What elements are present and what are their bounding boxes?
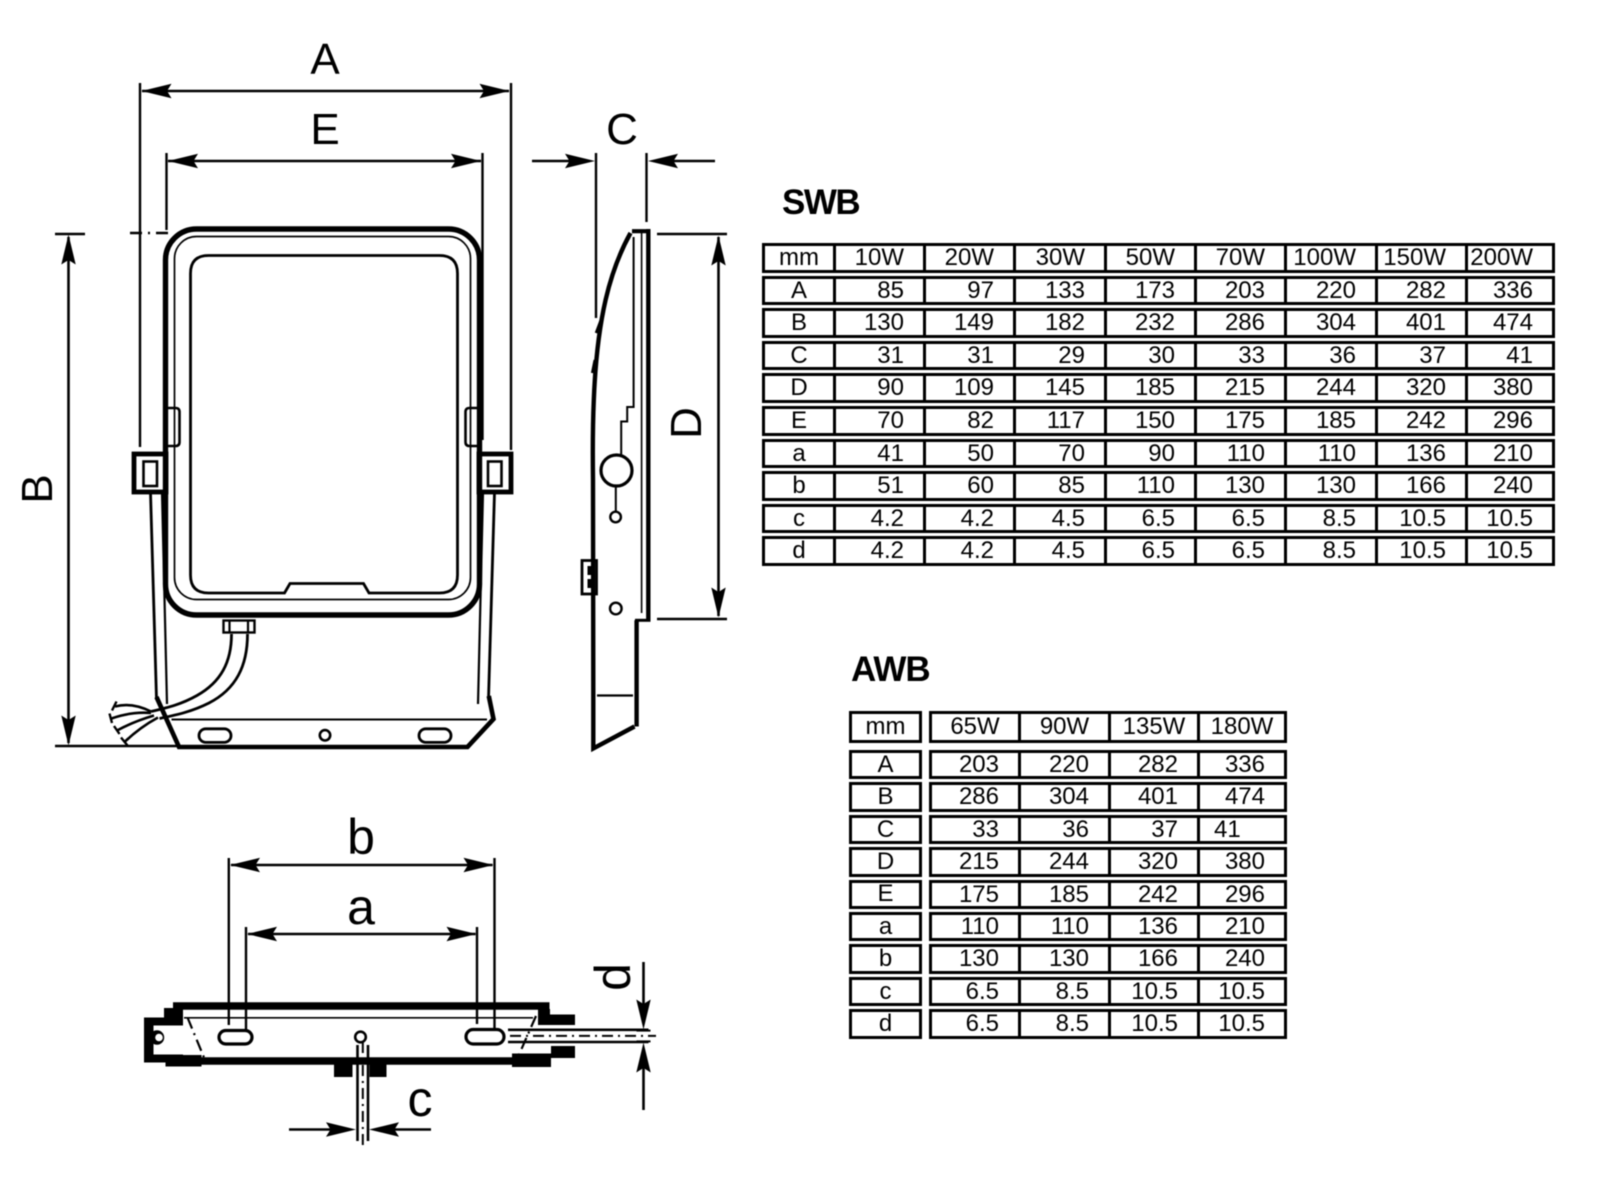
svg-text:C: C: [606, 105, 638, 154]
svg-text:E: E: [310, 105, 339, 154]
svg-text:c: c: [408, 1071, 433, 1127]
svg-text:B: B: [13, 474, 62, 503]
svg-text:A: A: [310, 35, 340, 84]
svg-text:d: d: [585, 963, 641, 991]
svg-text:b: b: [347, 809, 375, 865]
svg-text:D: D: [662, 407, 711, 439]
svg-text:a: a: [347, 879, 375, 935]
